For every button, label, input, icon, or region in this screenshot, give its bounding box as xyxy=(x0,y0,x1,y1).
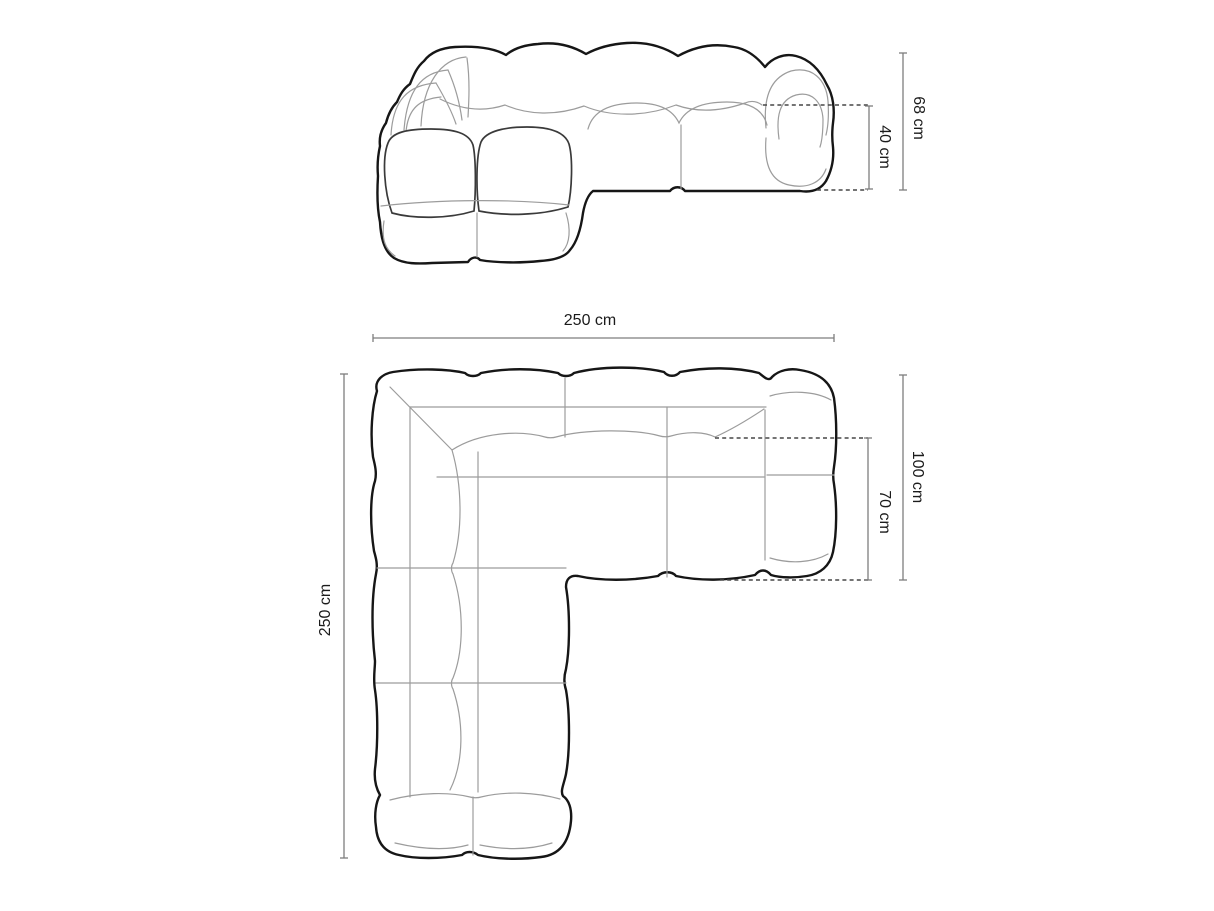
top-right-section-depth-label: 100 cm xyxy=(909,451,925,503)
top-view-drawing xyxy=(371,368,836,859)
front-seat-height-label: 40 cm xyxy=(876,125,892,169)
sofa-dimension-diagram xyxy=(0,0,1214,911)
top-depth-label: 250 cm xyxy=(318,584,334,636)
top-seat-depth-label: 70 cm xyxy=(876,490,892,534)
front-total-height-label: 68 cm xyxy=(910,96,926,140)
diagram-canvas: 68 cm 40 cm 250 cm 250 cm 100 cm 70 cm xyxy=(0,0,1214,911)
top-sofa-outline xyxy=(371,368,836,859)
top-width-label: 250 cm xyxy=(564,313,616,329)
front-view-drawing xyxy=(377,43,833,264)
